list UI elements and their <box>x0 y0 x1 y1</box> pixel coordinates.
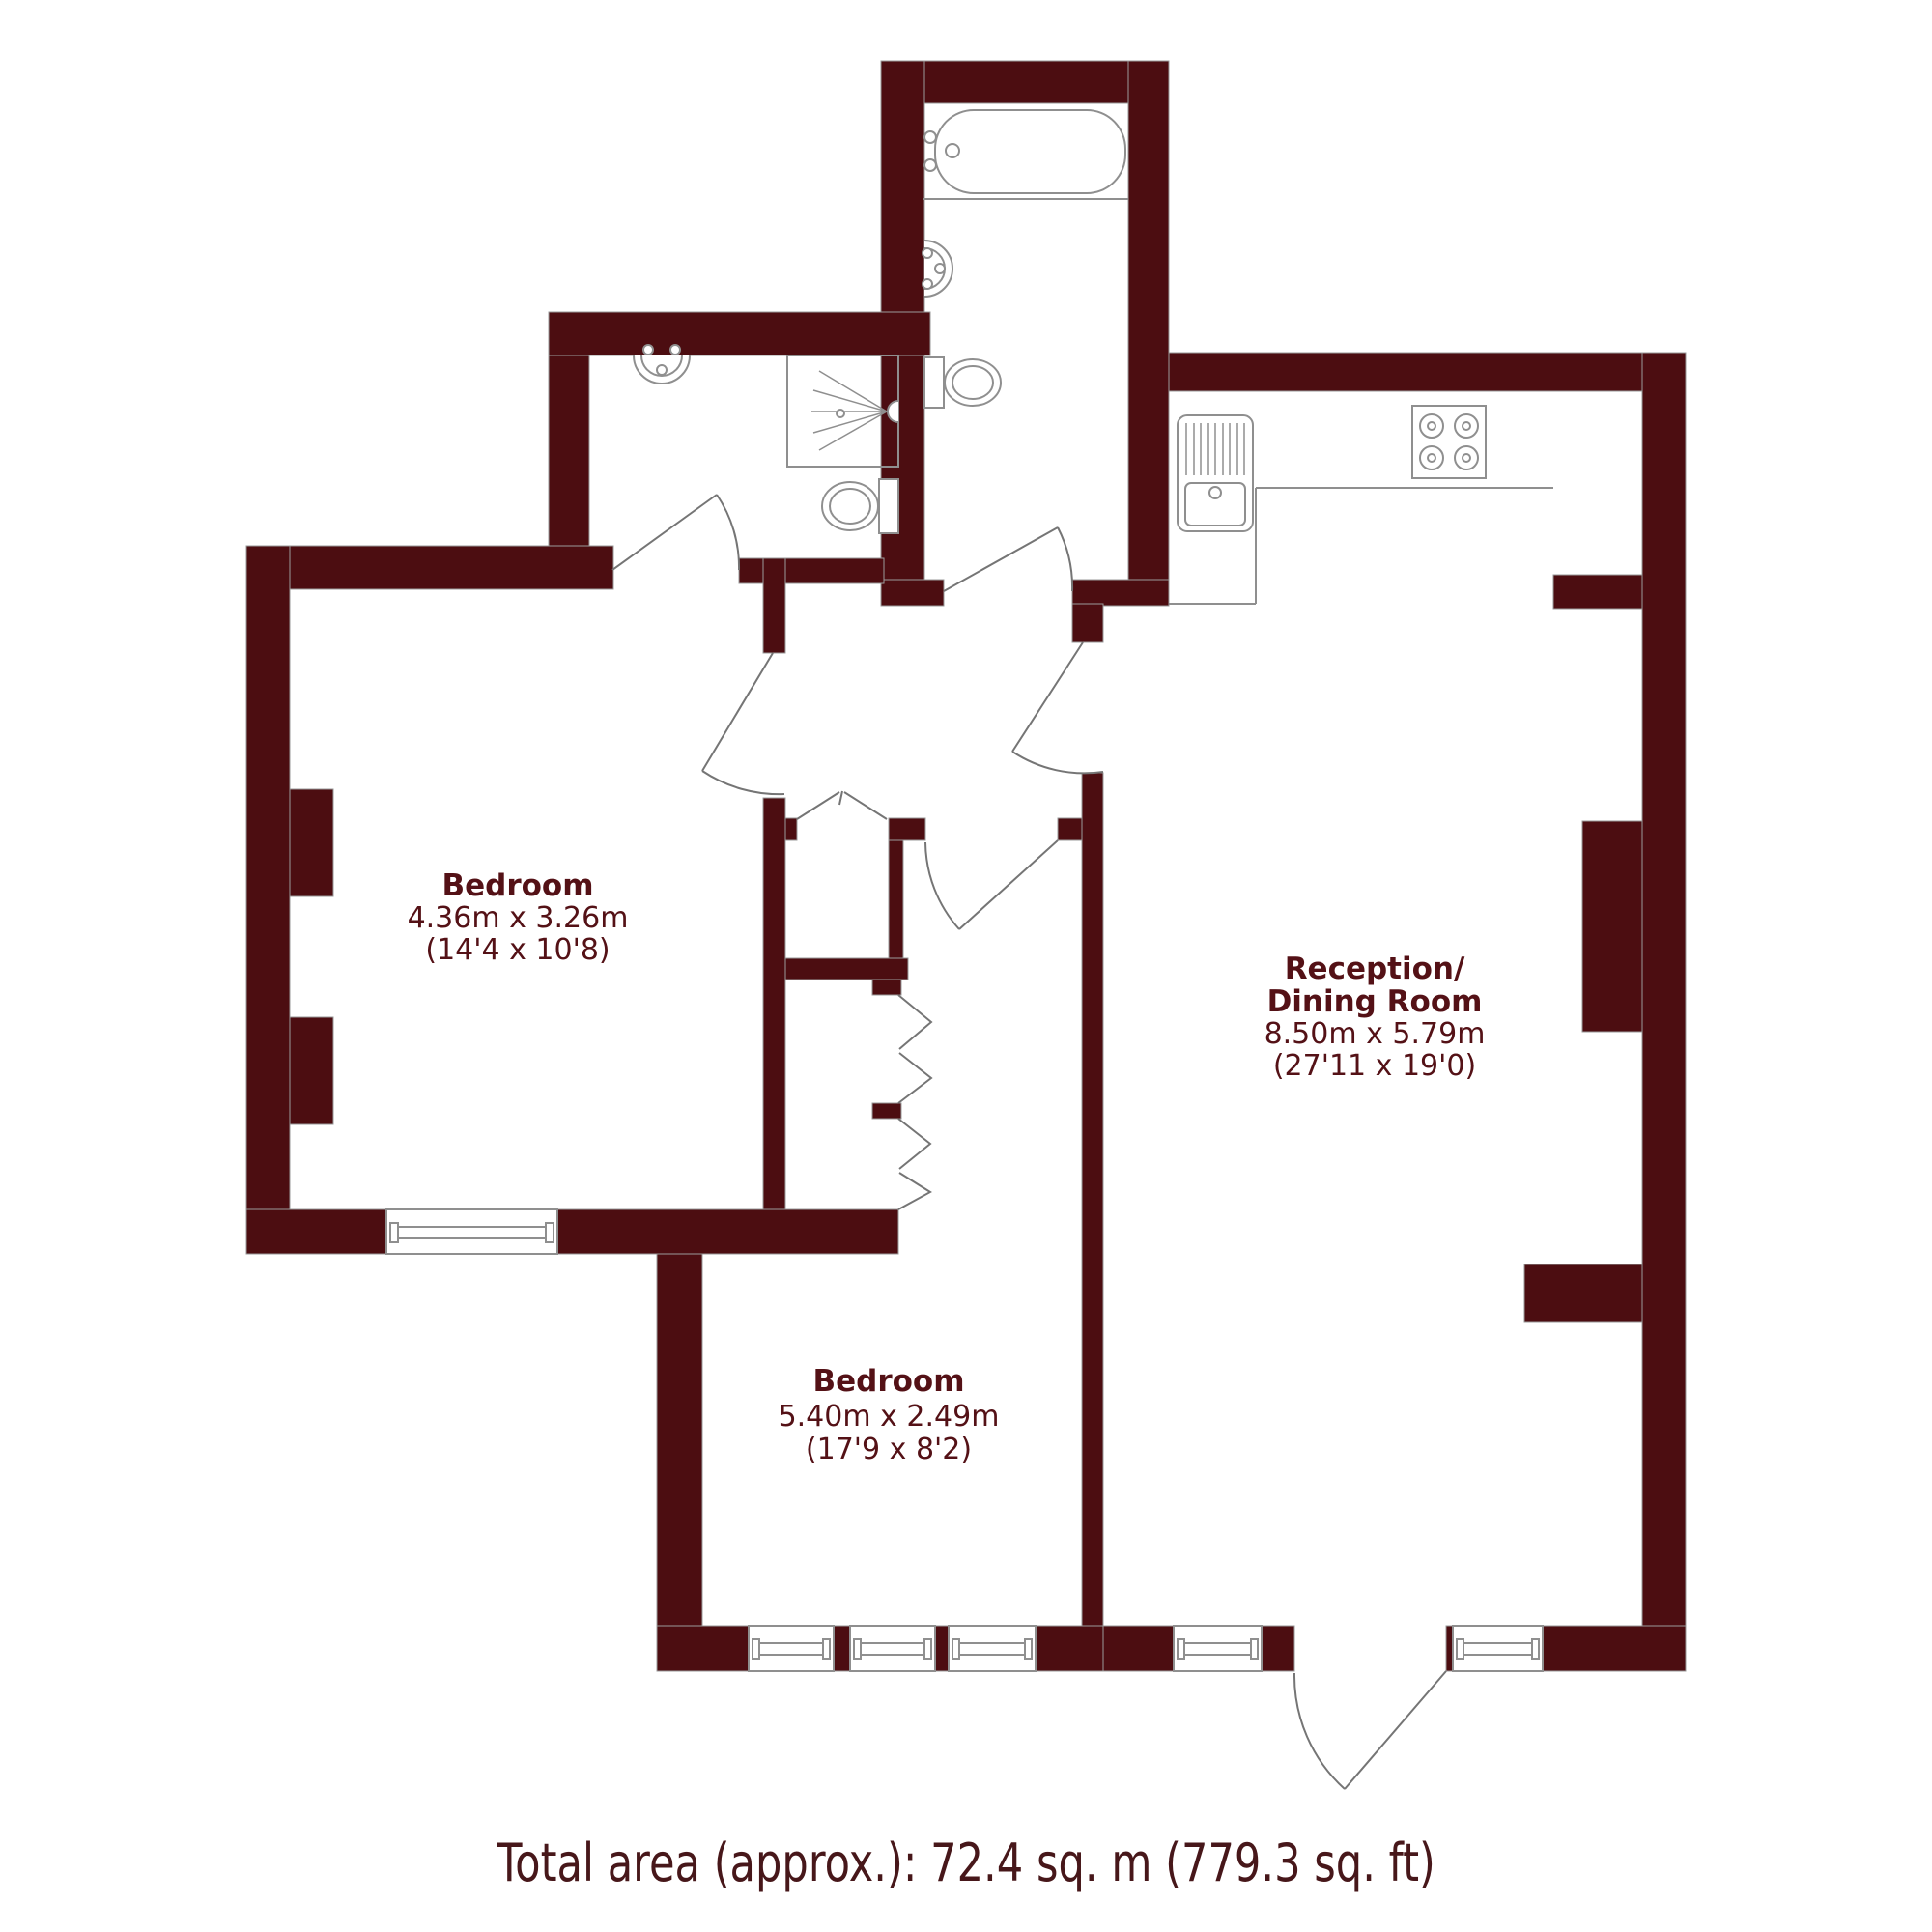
wall-segment <box>889 818 925 840</box>
reception-dims-metric: 8.50m x 5.79m <box>1264 1017 1486 1051</box>
reception-name-line1: Reception/ <box>1285 952 1465 986</box>
wall-segment <box>1446 1626 1453 1671</box>
wall-segment <box>1082 773 1103 1626</box>
window-bedroom1 <box>386 1209 557 1254</box>
total-area-label: Total area (approx.): 72.4 sq. m (779.3 … <box>496 1833 1435 1893</box>
wall-segment <box>834 1626 850 1671</box>
kitchen-sink-unit <box>1178 415 1253 531</box>
wall-segment <box>246 546 290 1254</box>
window-reception-1 <box>1174 1626 1262 1671</box>
wall-segment <box>1072 580 1169 606</box>
wall-segment <box>739 558 884 583</box>
wall-segment <box>763 558 785 653</box>
wall-segment <box>1058 818 1082 840</box>
footer: Total area (approx.): 72.4 sq. m (779.3 … <box>496 1833 1435 1893</box>
wall-segment <box>1262 1626 1294 1671</box>
bedroom2-dims-metric: 5.40m x 2.49m <box>779 1400 1000 1434</box>
wall-segment <box>1642 353 1686 1671</box>
bedroom1-dims-imperial: (14'4 x 10'8) <box>425 933 610 967</box>
wall-segment <box>881 580 944 606</box>
bedroom1-name: Bedroom <box>441 868 593 903</box>
wall-segment <box>657 1626 749 1671</box>
wall-segment <box>872 1103 901 1119</box>
wall-segment <box>1128 61 1169 606</box>
wall-segment <box>1169 353 1686 391</box>
wall-segment <box>549 312 930 355</box>
floorplan-svg: Bedroom 4.36m x 3.26m (14'4 x 10'8) Bedr… <box>0 0 1932 1932</box>
wall-segment <box>785 958 908 980</box>
ensuite-toilet <box>822 479 898 533</box>
window-reception-2 <box>1453 1626 1543 1671</box>
kitchen-hob <box>1412 406 1486 478</box>
wall-segment <box>657 1254 702 1671</box>
wall-segment <box>1072 604 1103 642</box>
wall-segment <box>246 1209 898 1254</box>
wall-segment <box>1543 1626 1686 1671</box>
wall-segment <box>1582 821 1642 1032</box>
bedroom2-dims-imperial: (17'9 x 8'2) <box>806 1433 972 1466</box>
bedroom1-dims-metric: 4.36m x 3.26m <box>408 901 629 935</box>
wall-segment <box>1553 575 1642 609</box>
window-bedroom2-1 <box>749 1626 834 1671</box>
reception-name-line2: Dining Room <box>1267 984 1483 1019</box>
wall-segment <box>1103 1626 1174 1671</box>
bathtub <box>923 110 1128 199</box>
wall-segment <box>763 798 785 1209</box>
bedroom2-name: Bedroom <box>812 1364 964 1399</box>
wall-segment <box>785 818 797 840</box>
wall-segment <box>872 980 901 995</box>
window-bedroom2-3 <box>949 1626 1036 1671</box>
wall-segment <box>1524 1264 1642 1322</box>
wall-segment <box>935 1626 949 1671</box>
window-bedroom2-2 <box>850 1626 935 1671</box>
wall-segment <box>889 840 903 958</box>
wall-segment <box>290 789 333 896</box>
wall-segment <box>1036 1626 1103 1671</box>
wall-segment <box>290 1017 333 1124</box>
floorplan-page: Bedroom 4.36m x 3.26m (14'4 x 10'8) Bedr… <box>0 0 1932 1932</box>
wall-segment <box>246 546 613 589</box>
reception-dims-imperial: (27'11 x 19'0) <box>1273 1049 1476 1083</box>
bathroom-toilet <box>924 357 1001 408</box>
